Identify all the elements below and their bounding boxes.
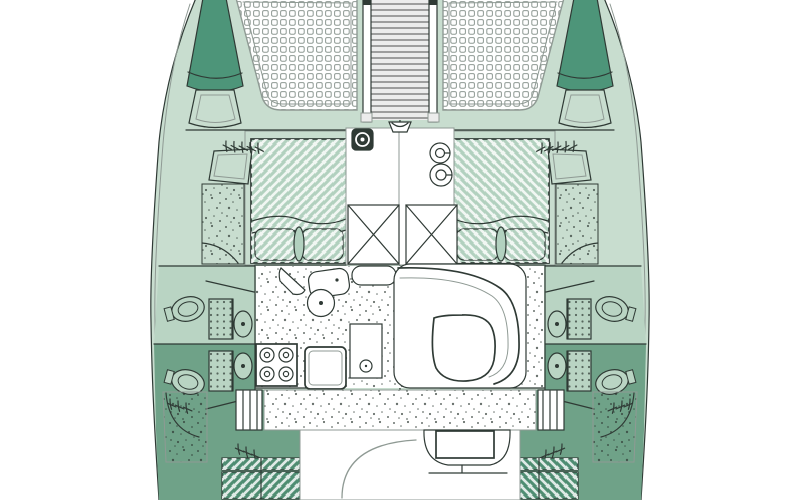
dinette [394,264,526,388]
mast-walkway [361,0,439,132]
port-sink-aft-drain [241,364,245,368]
galley-cabinet [350,324,382,378]
windlass-center [361,138,365,142]
port-aft-cushions [222,458,300,499]
walkway-foot-left [361,113,372,122]
galley-cabinet-drain [365,365,367,367]
port-pillow-right-hatch [302,229,343,260]
anchor-windlass [352,129,373,150]
walkway-rail-left [363,0,371,122]
helm-seat-cushion [436,431,494,458]
port-sink-forward-drain [241,322,245,326]
port-forward-cabin [245,131,353,265]
port-shower-aft-dots [209,351,232,391]
port-boarding-steps [236,390,262,430]
port-anchor-locker [189,90,241,128]
dinette-table [432,315,495,381]
deck-plan-svg: Catamaran deck layout plan [0,0,810,500]
galley-island [305,347,346,389]
port-walkway-speckle [202,184,244,264]
galley-counter-dot [335,278,338,281]
cockpit [264,390,536,500]
walkway-rail-right [429,0,437,122]
walkway-rail-left-cap [363,0,371,5]
walkway-bed [371,0,429,120]
walkway-foot-right [428,113,439,122]
deck-plan-canvas: Catamaran deck layout plan [0,0,810,500]
salon [256,264,544,389]
walkway-rail-right-cap [429,0,437,5]
nav-seat-left [352,266,396,285]
port-pillow-left-hatch [255,229,296,260]
port-berth-bolster [294,227,304,261]
galley-sink-drain [319,301,323,305]
aft-walkway-speckle [264,390,536,430]
port-shower-forward-dots [209,299,232,339]
